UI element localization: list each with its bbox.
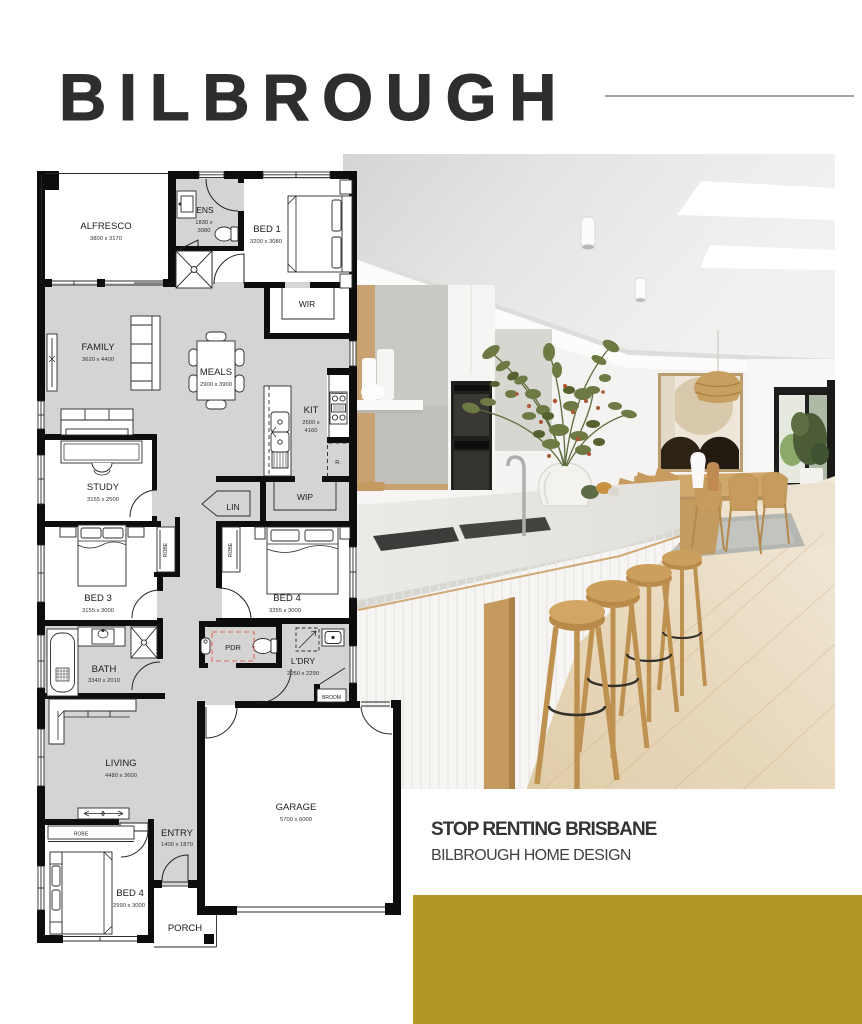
- svg-text:STUDY: STUDY: [87, 482, 120, 493]
- svg-text:5700 x 6000: 5700 x 6000: [280, 817, 312, 823]
- svg-text:ENS: ENS: [196, 205, 214, 215]
- svg-text:BED 4: BED 4: [273, 593, 300, 604]
- svg-text:ROBE: ROBE: [74, 832, 89, 838]
- svg-text:2500 x: 2500 x: [302, 420, 320, 426]
- svg-text:MEALS: MEALS: [200, 367, 232, 378]
- svg-text:BROOM: BROOM: [322, 695, 341, 701]
- svg-text:FAMILY: FAMILY: [81, 342, 115, 353]
- svg-text:PDR: PDR: [225, 643, 241, 652]
- svg-text:3155 x 2500: 3155 x 2500: [87, 497, 119, 503]
- svg-text:WIP: WIP: [297, 492, 313, 502]
- svg-text:WIR: WIR: [299, 299, 316, 309]
- svg-text:BED 4: BED 4: [116, 888, 143, 899]
- svg-text:PORCH: PORCH: [168, 923, 202, 934]
- svg-text:LIN: LIN: [226, 502, 239, 512]
- svg-text:L'DRY: L'DRY: [291, 656, 315, 666]
- svg-text:3620 x 4400: 3620 x 4400: [82, 357, 114, 363]
- svg-text:2990 x 3000: 2990 x 3000: [113, 903, 145, 909]
- svg-text:3800 x 3170: 3800 x 3170: [90, 236, 122, 242]
- svg-text:LIVING: LIVING: [105, 758, 136, 769]
- svg-text:ALFRESCO: ALFRESCO: [80, 221, 131, 232]
- svg-text:R.: R.: [335, 460, 341, 466]
- svg-text:4480 x 3600: 4480 x 3600: [105, 773, 137, 779]
- svg-text:3200 x 3080: 3200 x 3080: [250, 239, 282, 245]
- svg-text:1400 x 1870: 1400 x 1870: [161, 842, 193, 848]
- svg-text:ROBE: ROBE: [163, 542, 169, 557]
- svg-text:BED 3: BED 3: [84, 593, 111, 604]
- svg-text:BATH: BATH: [92, 664, 117, 675]
- svg-text:KIT: KIT: [304, 405, 319, 416]
- svg-text:3340 x 2010: 3340 x 2010: [88, 678, 120, 684]
- svg-text:4160: 4160: [305, 428, 318, 434]
- svg-text:BED 1: BED 1: [253, 224, 280, 235]
- svg-text:3080: 3080: [198, 228, 211, 234]
- svg-text:1830 x: 1830 x: [195, 220, 213, 226]
- svg-text:GARAGE: GARAGE: [276, 802, 317, 813]
- svg-text:2900 x 3900: 2900 x 3900: [200, 382, 232, 388]
- svg-text:ROBE: ROBE: [228, 542, 234, 557]
- svg-text:3155 x 3000: 3155 x 3000: [82, 608, 114, 614]
- svg-text:3255 x 3000: 3255 x 3000: [269, 608, 301, 614]
- svg-text:2050 x 2290: 2050 x 2290: [287, 671, 319, 677]
- svg-text:ENTRY: ENTRY: [161, 828, 194, 839]
